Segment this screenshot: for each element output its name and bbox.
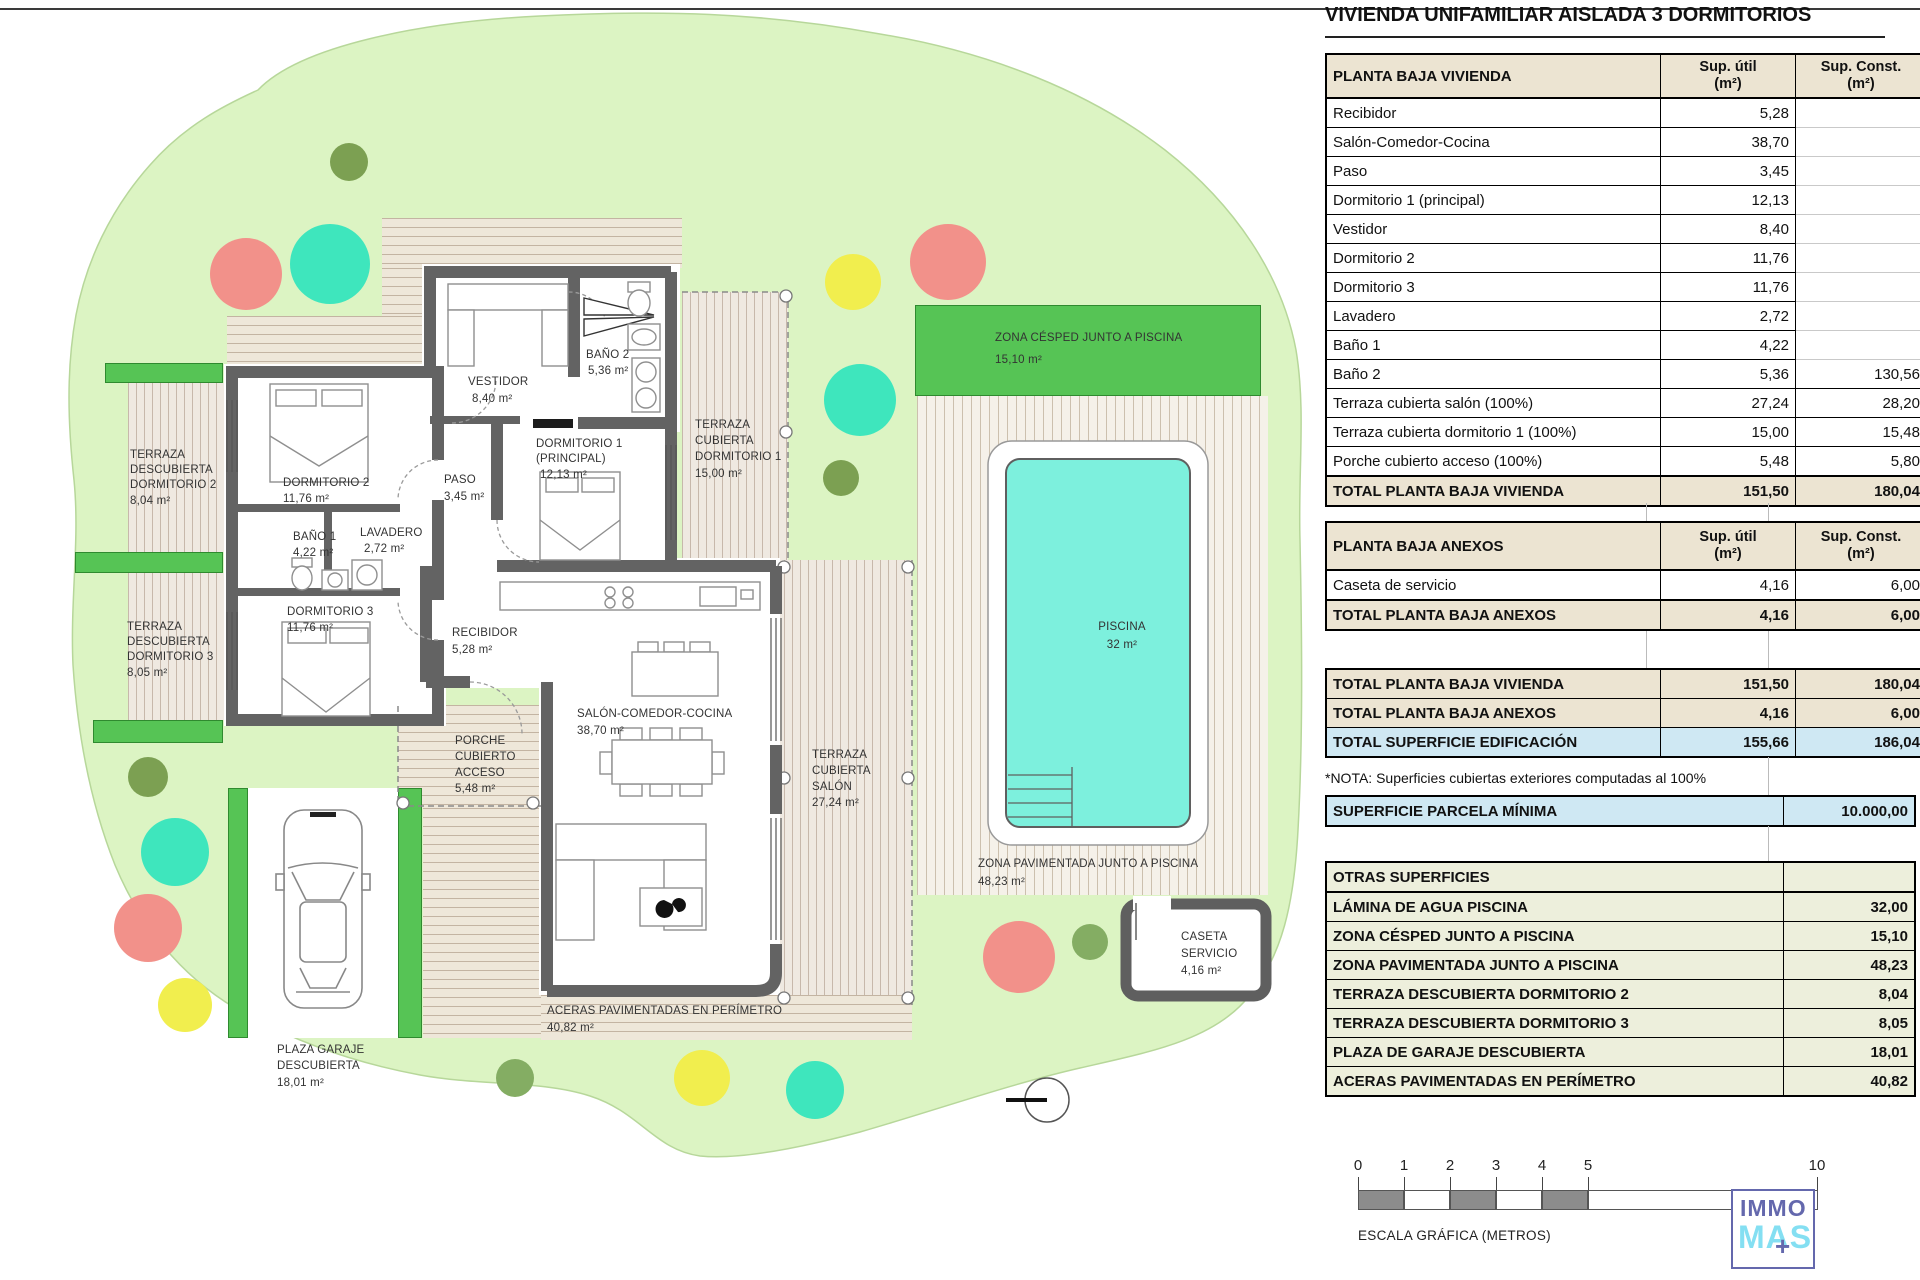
sink-icon bbox=[632, 329, 656, 345]
svg-text:48,23 m²: 48,23 m² bbox=[978, 876, 1025, 888]
scale-tick-label: 2 bbox=[1446, 1157, 1454, 1174]
table-row: TOTAL PLANTA BAJA ANEXOS4,166,00 bbox=[1326, 699, 1920, 728]
svg-text:8,40 m²: 8,40 m² bbox=[472, 393, 512, 405]
label-lavadero: LAVADERO bbox=[360, 527, 423, 539]
table-row-total-edificacion: TOTAL SUPERFICIE EDIFICACIÓN155,66186,04 bbox=[1326, 728, 1920, 758]
label-cesped: ZONA CÉSPED JUNTO A PISCINA bbox=[995, 331, 1182, 344]
tree-icon bbox=[824, 364, 896, 436]
svg-text:SERVICIO: SERVICIO bbox=[1181, 948, 1237, 960]
label-dorm1: DORMITORIO 1 bbox=[536, 438, 623, 450]
label-caseta: CASETA bbox=[1181, 931, 1227, 943]
tree-icon bbox=[158, 978, 212, 1032]
scale-tick-label: 4 bbox=[1538, 1157, 1546, 1174]
tree-icon bbox=[983, 921, 1055, 993]
tree-icon bbox=[825, 254, 881, 310]
svg-text:DORMITORIO 2: DORMITORIO 2 bbox=[130, 479, 217, 491]
tree-icon bbox=[1072, 924, 1108, 960]
compass-icon bbox=[1006, 1078, 1069, 1122]
label-dorm3: DORMITORIO 3 bbox=[287, 606, 374, 618]
label-terraza-d3: TERRAZA bbox=[127, 621, 182, 633]
table-row: ACERAS PAVIMENTADAS EN PERÍMETRO40,82 bbox=[1326, 1067, 1915, 1097]
table-row: Baño 14,22 bbox=[1326, 331, 1920, 360]
svg-text:DESCUBIERTA: DESCUBIERTA bbox=[130, 464, 213, 476]
sofa-icon bbox=[556, 824, 706, 860]
scale-tick-label: 1 bbox=[1400, 1157, 1408, 1174]
tree-icon bbox=[910, 224, 986, 300]
table-planta-baja-anexos: PLANTA BAJA ANEXOS Sup. útil(m²) Sup. Co… bbox=[1325, 521, 1920, 631]
site-plan-sheet: TERRAZA DESCUBIERTA DORMITORIO 2 8,04 m²… bbox=[0, 0, 1920, 1280]
tree-icon bbox=[823, 460, 859, 496]
tree-icon bbox=[141, 818, 209, 886]
label-terraza-cub-dorm1: TERRAZA bbox=[695, 419, 750, 431]
table-row: ZONA PAVIMENTADA JUNTO A PISCINA48,23 bbox=[1326, 951, 1915, 980]
svg-text:(PRINCIPAL): (PRINCIPAL) bbox=[536, 453, 606, 465]
gap-rule bbox=[1768, 503, 1769, 521]
sheet-title: VIVIENDA UNIFAMILIAR AISLADA 3 DORMITORI… bbox=[1325, 4, 1887, 27]
svg-text:8,05 m²: 8,05 m² bbox=[127, 667, 167, 679]
svg-text:12,13 m²: 12,13 m² bbox=[540, 469, 587, 481]
gap-rule bbox=[1768, 757, 1769, 795]
tree-icon bbox=[496, 1059, 534, 1097]
label-plaza-garaje: PLAZA GARAJE bbox=[277, 1044, 365, 1056]
label-salon: SALÓN-COMEDOR-COCINA bbox=[577, 707, 733, 720]
table-row: Lavadero2,72 bbox=[1326, 302, 1920, 331]
logo-plus-icon: + bbox=[1775, 1231, 1790, 1262]
svg-text:CUBIERTA: CUBIERTA bbox=[812, 765, 871, 777]
gap-rule bbox=[1768, 826, 1769, 861]
table-row: Baño 25,36130,56 bbox=[1326, 360, 1920, 389]
scale-segment bbox=[1404, 1190, 1450, 1210]
tree-icon bbox=[114, 894, 182, 962]
table-row: Caseta de servicio4,166,00 bbox=[1326, 570, 1920, 600]
svg-text:3,45 m²: 3,45 m² bbox=[444, 491, 484, 503]
table-total-row: TOTAL PLANTA BAJA ANEXOS4,166,00 bbox=[1326, 600, 1920, 630]
logo-line1: IMMO bbox=[1740, 1195, 1807, 1222]
table-row: TERRAZA DESCUBIERTA DORMITORIO 38,05 bbox=[1326, 1009, 1915, 1038]
kitchen-island bbox=[632, 652, 718, 696]
service-hut bbox=[1126, 896, 1266, 996]
table-row: Paso3,45 bbox=[1326, 157, 1920, 186]
table-row: Vestidor8,40 bbox=[1326, 215, 1920, 244]
label-pavimentada: ZONA PAVIMENTADA JUNTO A PISCINA bbox=[978, 858, 1198, 870]
label-paso: PASO bbox=[444, 474, 476, 486]
tree-icon bbox=[210, 238, 282, 310]
car-icon bbox=[276, 810, 370, 1008]
table-row: Salón-Comedor-Cocina38,70 bbox=[1326, 128, 1920, 157]
label-recibidor: RECIBIDOR bbox=[452, 627, 518, 639]
table-row: TOTAL PLANTA BAJA VIVIENDA151,50180,04 bbox=[1326, 669, 1920, 699]
table-row: ZONA CÉSPED JUNTO A PISCINA15,10 bbox=[1326, 922, 1915, 951]
table-row: Recibidor5,28 bbox=[1326, 98, 1920, 128]
table-row: Dormitorio 311,76 bbox=[1326, 273, 1920, 302]
label-dorm2: DORMITORIO 2 bbox=[283, 477, 370, 489]
table-parcela-minima: SUPERFICIE PARCELA MÍNIMA10.000,00 bbox=[1325, 795, 1916, 827]
table-total-row: TOTAL PLANTA BAJA VIVIENDA151,50180,04 bbox=[1326, 476, 1920, 506]
table-row: Terraza cubierta dormitorio 1 (100%)15,0… bbox=[1326, 418, 1920, 447]
scale-tick-label: 3 bbox=[1492, 1157, 1500, 1174]
dining-table bbox=[612, 740, 712, 784]
scale-segment bbox=[1358, 1190, 1404, 1210]
svg-text:DORMITORIO 1: DORMITORIO 1 bbox=[695, 451, 782, 463]
table-row: Terraza cubierta salón (100%)27,2428,20 bbox=[1326, 389, 1920, 418]
svg-text:2,72 m²: 2,72 m² bbox=[364, 543, 404, 555]
table-planta-baja-vivienda: PLANTA BAJA VIVIENDA Sup. útil(m²) Sup. … bbox=[1325, 53, 1920, 507]
gap-rule bbox=[1646, 631, 1647, 668]
title-rule bbox=[1325, 36, 1885, 38]
immomas-logo: IMMO MAS + bbox=[1731, 1189, 1815, 1269]
scale-tick-label: 5 bbox=[1584, 1157, 1592, 1174]
trees bbox=[114, 143, 1108, 1119]
svg-text:DORMITORIO 3: DORMITORIO 3 bbox=[127, 651, 214, 663]
nota-text: *NOTA: Superficies cubiertas exteriores … bbox=[1325, 770, 1706, 786]
table-row: SUPERFICIE PARCELA MÍNIMA10.000,00 bbox=[1326, 796, 1915, 826]
pool bbox=[988, 441, 1208, 845]
svg-text:4,16 m²: 4,16 m² bbox=[1181, 965, 1221, 977]
toilet-icon bbox=[292, 566, 312, 590]
svg-text:11,76 m²: 11,76 m² bbox=[287, 622, 333, 634]
svg-text:5,36 m²: 5,36 m² bbox=[588, 365, 628, 377]
svg-text:DESCUBIERTA: DESCUBIERTA bbox=[127, 636, 210, 648]
svg-text:CUBIERTA: CUBIERTA bbox=[695, 435, 754, 447]
sink-icon bbox=[328, 573, 342, 587]
svg-text:18,01 m²: 18,01 m² bbox=[277, 1077, 324, 1089]
svg-text:4,22 m²: 4,22 m² bbox=[293, 547, 333, 559]
label-terraza-d2: TERRAZA bbox=[130, 449, 185, 461]
svg-text:15,10 m²: 15,10 m² bbox=[995, 354, 1042, 366]
table-header-row: OTRAS SUPERFICIES bbox=[1326, 862, 1915, 892]
tree-icon bbox=[290, 224, 370, 304]
table-resumen: TOTAL PLANTA BAJA VIVIENDA151,50180,04 T… bbox=[1325, 668, 1920, 758]
svg-text:CUBIERTO: CUBIERTO bbox=[455, 751, 516, 763]
label-aceras: ACERAS PAVIMENTADAS EN PERÍMETRO bbox=[547, 1004, 782, 1017]
svg-text:8,04 m²: 8,04 m² bbox=[130, 495, 170, 507]
table-otras-superficies: OTRAS SUPERFICIES LÁMINA DE AGUA PISCINA… bbox=[1325, 861, 1916, 1097]
table-row: Dormitorio 211,76 bbox=[1326, 244, 1920, 273]
kitchen-sink bbox=[700, 587, 736, 606]
svg-text:DESCUBIERTA: DESCUBIERTA bbox=[277, 1060, 360, 1072]
table-row: TERRAZA DESCUBIERTA DORMITORIO 28,04 bbox=[1326, 980, 1915, 1009]
table-row: PLAZA DE GARAJE DESCUBIERTA18,01 bbox=[1326, 1038, 1915, 1067]
scale-tick-label: 0 bbox=[1354, 1157, 1362, 1174]
table-row: LÁMINA DE AGUA PISCINA32,00 bbox=[1326, 892, 1915, 922]
scale-caption: ESCALA GRÁFICA (METROS) bbox=[1358, 1228, 1551, 1243]
scale-segment bbox=[1450, 1190, 1496, 1210]
scale-tick-label: 10 bbox=[1809, 1157, 1826, 1174]
label-bano2: BAÑO 2 bbox=[586, 348, 629, 361]
tree-icon bbox=[128, 757, 168, 797]
svg-text:32 m²: 32 m² bbox=[1107, 639, 1137, 651]
svg-text:ACCESO: ACCESO bbox=[455, 767, 505, 779]
sliding-door bbox=[533, 419, 573, 428]
tree-icon bbox=[674, 1050, 730, 1106]
svg-text:38,70 m²: 38,70 m² bbox=[577, 725, 624, 737]
label-vestidor: VESTIDOR bbox=[468, 376, 528, 388]
svg-text:27,24 m²: 27,24 m² bbox=[812, 797, 859, 809]
svg-text:11,76 m²: 11,76 m² bbox=[283, 493, 329, 505]
scale-segment bbox=[1542, 1190, 1588, 1210]
gap-rule bbox=[1646, 503, 1647, 521]
toilet-icon bbox=[628, 290, 650, 316]
table-row: Porche cubierto acceso (100%)5,485,80 bbox=[1326, 447, 1920, 477]
svg-text:SALÓN: SALÓN bbox=[812, 780, 852, 793]
scale-segment bbox=[1496, 1190, 1542, 1210]
label-piscina: PISCINA bbox=[1098, 621, 1146, 633]
table-row: Dormitorio 1 (principal)12,13 bbox=[1326, 186, 1920, 215]
tree-icon bbox=[330, 143, 368, 181]
svg-text:15,00 m²: 15,00 m² bbox=[695, 468, 742, 480]
label-terraza-cub-salon: TERRAZA bbox=[812, 749, 867, 761]
svg-text:5,48 m²: 5,48 m² bbox=[455, 783, 495, 795]
table-header: PLANTA BAJA VIVIENDA bbox=[1326, 54, 1661, 98]
svg-text:5,28 m²: 5,28 m² bbox=[452, 644, 492, 656]
label-porche: PORCHE bbox=[455, 735, 506, 747]
gap-rule bbox=[1768, 631, 1769, 668]
tree-icon bbox=[786, 1061, 844, 1119]
label-bano1: BAÑO 1 bbox=[293, 530, 336, 543]
svg-text:40,82 m²: 40,82 m² bbox=[547, 1022, 594, 1034]
